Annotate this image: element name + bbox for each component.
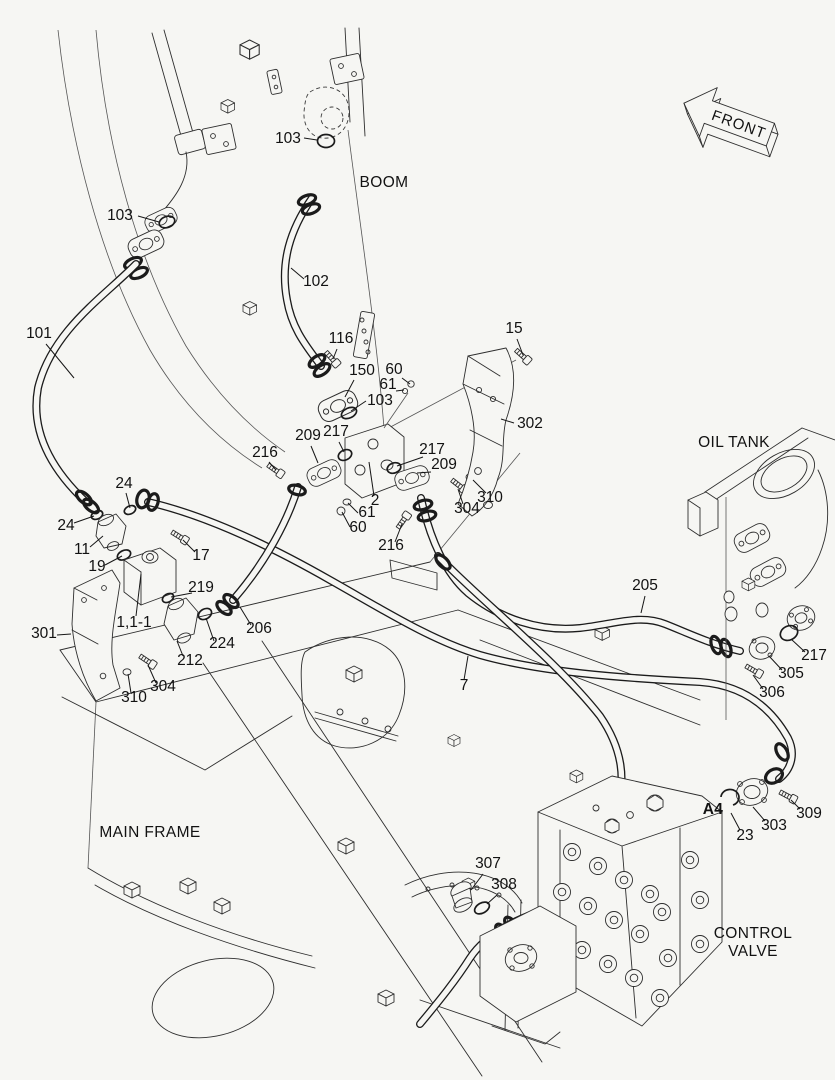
part-label-304: 304 [150, 678, 176, 695]
left-fitting-cluster [72, 504, 214, 701]
bolt-309 [778, 788, 798, 804]
screw-61-upper [402, 388, 407, 393]
o-ring-224 [196, 606, 213, 622]
pump-flange-block [480, 906, 576, 1022]
bolt-15 [513, 347, 532, 366]
part-label-219: 219 [188, 579, 214, 596]
leader-line-102 [291, 268, 304, 279]
screw-60-upper [408, 381, 414, 387]
part-label-17: 17 [192, 547, 209, 564]
part-label-19: 19 [88, 558, 105, 575]
control-valve-art [480, 774, 798, 1026]
part-label-24: 24 [115, 475, 133, 492]
part-label-307: 307 [475, 855, 501, 872]
part-label-304: 304 [454, 500, 480, 517]
leader-line-301 [57, 634, 71, 635]
part-label-205: 205 [632, 577, 658, 594]
plug-307 [448, 878, 475, 915]
hose-206 [215, 483, 307, 616]
part-label-306: 306 [759, 684, 785, 701]
front-arrow: FRONT [672, 79, 786, 170]
part-label-302: 302 [517, 415, 543, 432]
flange-209-left [304, 457, 343, 489]
o-ring-103-boom [318, 135, 335, 148]
leader-line-60 [402, 378, 410, 384]
leader-line-24 [74, 516, 94, 523]
part-label-23: 23 [736, 827, 753, 844]
flange-305 [746, 633, 778, 663]
part-label-216: 216 [378, 537, 404, 554]
part-label-15: 15 [505, 320, 522, 337]
part-label-103: 103 [275, 130, 301, 147]
part-label-102: 102 [303, 273, 329, 290]
part-label-310: 310 [121, 689, 147, 706]
leader-line-61 [348, 503, 358, 513]
part-label-103: 103 [107, 207, 133, 224]
leader-line-209 [311, 446, 318, 463]
nut-60-lower [337, 507, 345, 515]
o-ring-23 [721, 789, 739, 805]
part-label-116: 116 [329, 330, 354, 347]
part-label-217: 217 [323, 423, 349, 440]
region-label-boom: BOOM [360, 174, 409, 191]
piping-diagram: FRONT 1031011031021161515060611033022092… [0, 0, 835, 1080]
flange-150 [315, 388, 360, 425]
part-label-303: 303 [761, 817, 787, 834]
flange-disc-217-target [784, 602, 819, 634]
part-label-309: 309 [796, 805, 822, 822]
bolt-17 [170, 528, 190, 545]
bolt-216-right [395, 510, 412, 530]
elbow-11 [96, 512, 126, 552]
region-label-main-frame: MAIN FRAME [99, 824, 200, 841]
region-label-port-a4: A4 [703, 801, 724, 818]
part-label-216: 216 [252, 444, 278, 461]
leader-line-116 [333, 349, 337, 359]
washer-310-left [123, 669, 131, 675]
leader-line-205 [641, 596, 645, 613]
part-label-209: 209 [295, 427, 321, 444]
part-label-209: 209 [431, 456, 457, 473]
bolt-304-left [138, 653, 158, 670]
part-label-24: 24 [57, 517, 75, 534]
part-label-101: 101 [26, 325, 52, 342]
washer-24-upper [123, 504, 137, 516]
part-label-310: 310 [477, 489, 503, 506]
part-label-7: 7 [460, 677, 469, 694]
part-label-206: 206 [246, 620, 272, 637]
part-label-301: 301 [31, 625, 57, 642]
valve-block-2 [345, 424, 404, 498]
part-label-308: 308 [491, 876, 517, 893]
part-label-11: 11 [74, 541, 90, 558]
part-label-61: 61 [379, 376, 396, 393]
region-label-control-valve: CONTROLVALVE [714, 925, 793, 960]
region-label-oil-tank: OIL TANK [698, 434, 770, 451]
leader-line-103 [304, 138, 317, 140]
bolt-216-left [266, 462, 286, 479]
part-label-212: 212 [177, 652, 203, 669]
part-label-60: 60 [349, 519, 367, 536]
part-label-150: 150 [349, 362, 375, 379]
part-label-1,1-1: 1,1-1 [116, 614, 151, 631]
oil-tank-art [688, 428, 835, 720]
elbow-212 [164, 596, 198, 645]
part-label-217: 217 [801, 647, 827, 664]
plug-307-group [448, 878, 491, 916]
bracket-301 [72, 570, 120, 701]
parts-diagram-page: FRONT 1031011031021161515060611033022092… [0, 0, 835, 1080]
part-label-305: 305 [778, 665, 804, 682]
part-label-224: 224 [209, 635, 235, 652]
part-label-103: 103 [367, 392, 393, 409]
leader-line-308 [487, 895, 497, 904]
